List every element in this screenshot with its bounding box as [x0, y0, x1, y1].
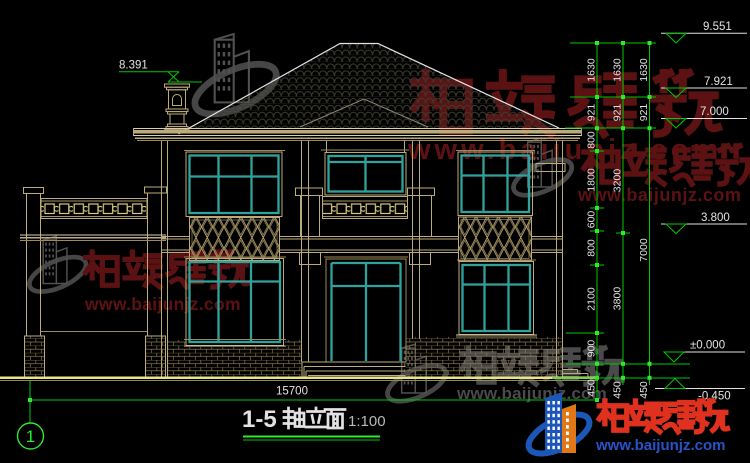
- svg-text:1630: 1630: [612, 58, 624, 82]
- svg-text:8.391: 8.391: [119, 60, 148, 72]
- svg-text:15700: 15700: [276, 386, 308, 398]
- svg-text:www.baijunjz.com: www.baijunjz.com: [595, 437, 725, 454]
- svg-text:800: 800: [586, 131, 598, 149]
- svg-text:921: 921: [612, 104, 624, 122]
- svg-text:7000: 7000: [638, 238, 650, 262]
- svg-text:3.800: 3.800: [701, 212, 730, 224]
- svg-text:3800: 3800: [612, 287, 624, 311]
- svg-text:1630: 1630: [638, 58, 650, 82]
- svg-text:800: 800: [586, 239, 598, 257]
- svg-text:±0.000: ±0.000: [690, 340, 725, 352]
- svg-text:450: 450: [612, 381, 624, 399]
- svg-text:1:100: 1:100: [348, 413, 386, 430]
- svg-text:1: 1: [26, 427, 35, 446]
- svg-text:2100: 2100: [586, 287, 598, 311]
- svg-text:9.551: 9.551: [703, 21, 732, 33]
- svg-text:921: 921: [638, 104, 650, 122]
- svg-text:3200: 3200: [612, 169, 624, 193]
- svg-text:7.921: 7.921: [704, 76, 733, 88]
- svg-text:900: 900: [586, 340, 598, 358]
- svg-text:www.baijunjz.com: www.baijunjz.com: [577, 185, 741, 205]
- svg-text:921: 921: [586, 104, 598, 122]
- svg-text:1-5: 1-5: [242, 406, 277, 433]
- svg-text:1630: 1630: [586, 58, 598, 82]
- svg-text:www.baijunjz.com: www.baijunjz.com: [84, 294, 241, 314]
- svg-text:450: 450: [586, 379, 598, 397]
- svg-text:1800: 1800: [586, 168, 598, 192]
- svg-text:600: 600: [586, 211, 598, 229]
- svg-text:450: 450: [638, 381, 650, 399]
- svg-text:7.000: 7.000: [700, 106, 729, 118]
